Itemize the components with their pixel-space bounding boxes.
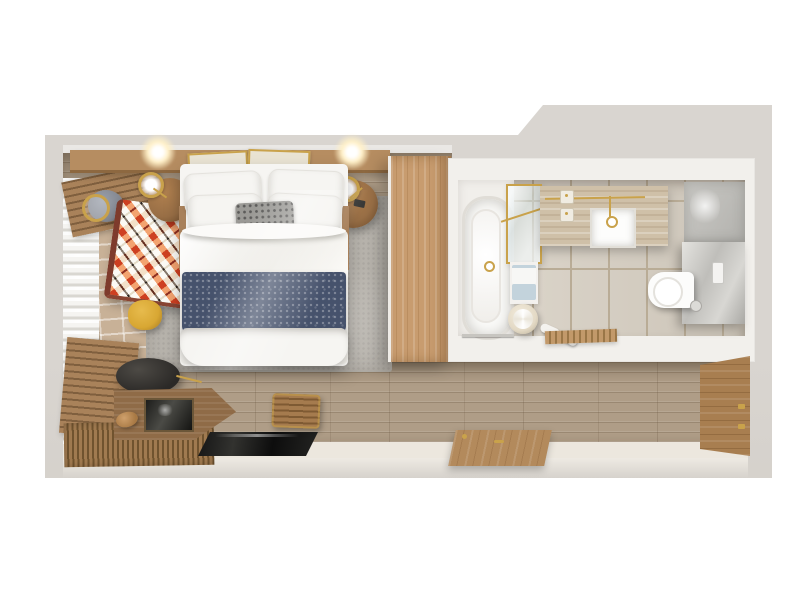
bathtub-drain <box>484 261 495 272</box>
black-desk-chair <box>116 358 180 394</box>
soap-dispenser <box>560 190 574 204</box>
sink-basin <box>590 208 636 248</box>
toilet-flush-plate <box>712 262 724 284</box>
double-bed <box>180 164 348 366</box>
wooden-bath-mat <box>545 329 617 345</box>
shower-glass-panel <box>506 184 542 264</box>
door-hinge <box>738 424 745 429</box>
desk-screen <box>144 398 194 432</box>
gold-floor-lamp <box>82 194 110 222</box>
floorplan-canvas <box>0 0 800 600</box>
gold-faucet-spout <box>606 216 618 228</box>
yellow-pouf <box>128 300 162 330</box>
slatted-wood-stool <box>271 393 320 429</box>
towel-white <box>512 265 536 284</box>
toilet-paper-holder <box>690 300 702 312</box>
upper-gray-wall <box>684 182 745 242</box>
tub-foot-rail <box>462 334 514 337</box>
door-handle <box>494 440 504 443</box>
folded-sheet <box>180 328 348 366</box>
towel-stool <box>508 304 538 334</box>
soap-dispenser <box>560 208 574 222</box>
gold-faucet <box>609 196 611 218</box>
wardrobe <box>388 156 451 362</box>
tv-glass-panel <box>198 432 318 456</box>
towel-shelf <box>510 262 538 304</box>
rolled-towel <box>513 309 533 329</box>
toilet <box>648 272 694 308</box>
towel-blue <box>512 284 536 300</box>
door-gold-detail <box>462 434 467 439</box>
navy-throw-blanket <box>182 272 346 334</box>
door-hinge <box>738 404 745 409</box>
ceiling-light-left <box>140 134 176 170</box>
